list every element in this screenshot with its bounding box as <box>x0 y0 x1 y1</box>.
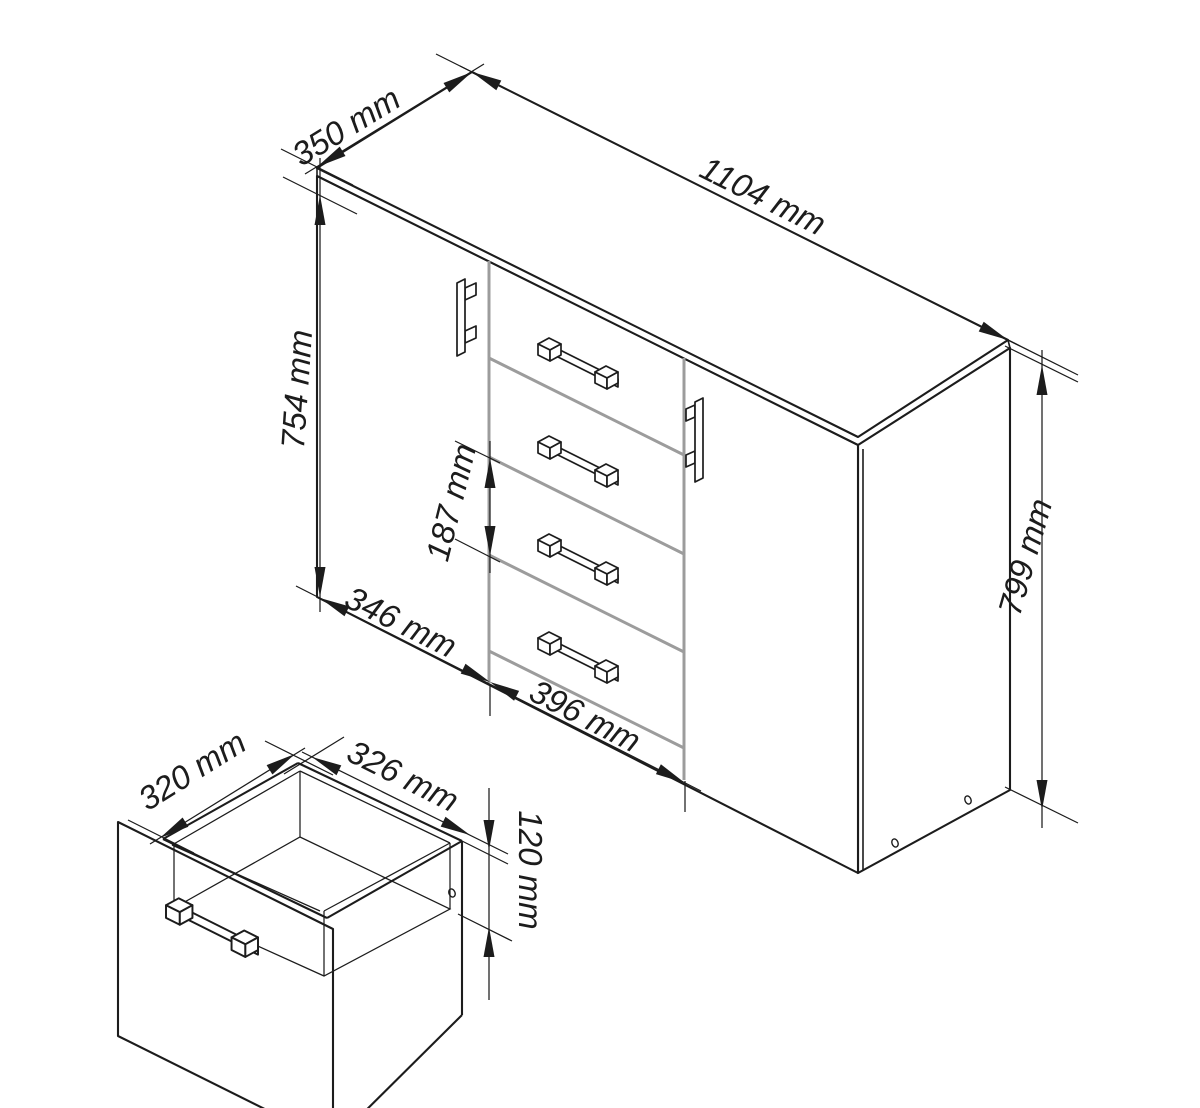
drawer-box-hole <box>448 888 457 898</box>
dim-label-door-height: 754 mm <box>274 328 319 450</box>
dim-label-drawer-depth: 320 mm <box>132 723 253 818</box>
drawer-detail-view <box>118 763 462 1108</box>
cabinet-view <box>317 72 1010 873</box>
dim-label-drawer-width: 326 mm <box>342 733 465 819</box>
technical-drawing-page: 350 mm 1104 mm 754 mm 187 mm <box>0 0 1200 1108</box>
dim-drawer-depth-320: 320 mm <box>128 723 333 853</box>
dim-label-drawer-height: 120 mm <box>512 810 549 929</box>
dim-drawer-height-120: 120 mm <box>458 788 549 1000</box>
cabinet-side-panel <box>858 348 1010 873</box>
dim-drawer-width-326: 326 mm <box>284 733 508 864</box>
furniture-drawing-canvas: 350 mm 1104 mm 754 mm 187 mm <box>0 0 1200 1108</box>
